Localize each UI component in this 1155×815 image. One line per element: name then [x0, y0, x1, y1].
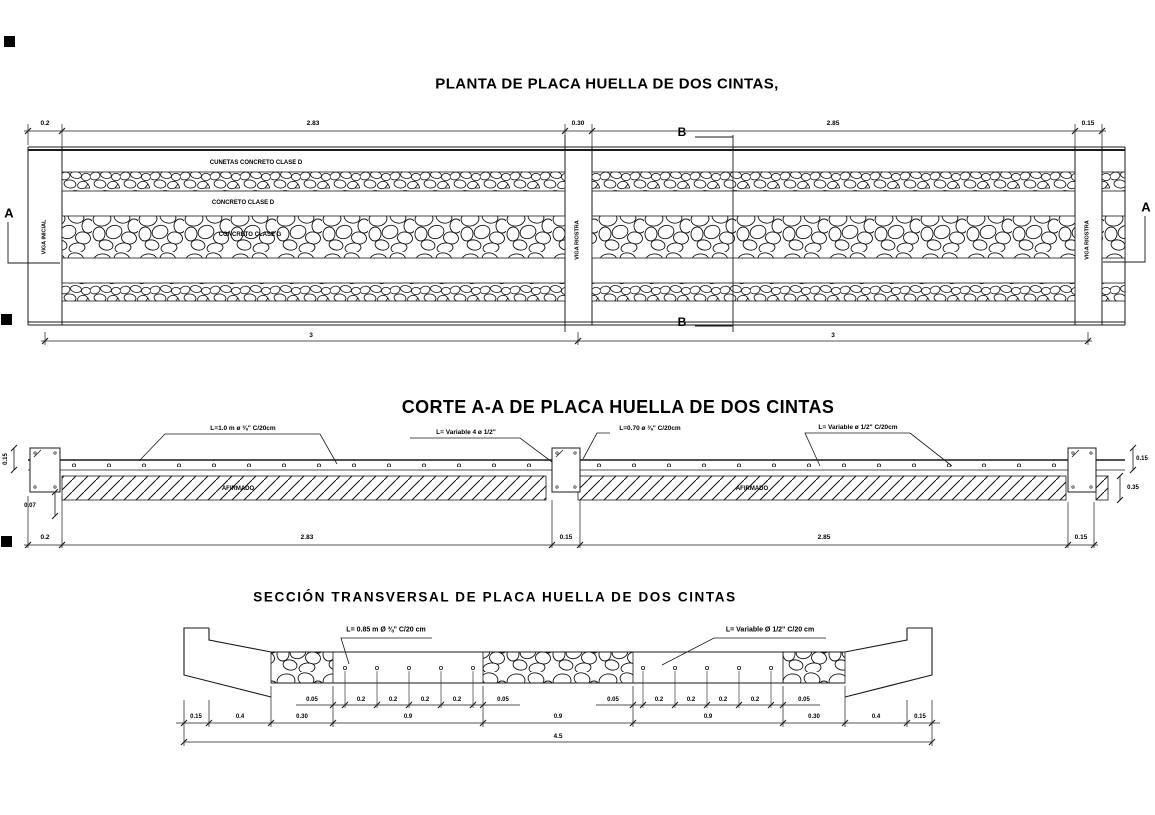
cad-sheet: PLANTA DE PLACA HUELLA DE DOS CINTAS, 0.… [0, 0, 1155, 815]
sec-r2-1: 0.15 [190, 714, 202, 720]
seccion-title: SECCIÓN TRANSVERSAL DE PLACA HUELLA DE D… [253, 590, 736, 604]
corte-annotation-4: L= Variable ø 1/2" C/20cm [818, 425, 897, 432]
sec-r2-4: 0.9 [404, 714, 412, 720]
corte-title: CORTE A-A DE PLACA HUELLA DE DOS CINTAS [402, 398, 835, 416]
plan-label-concreto-d: CONCRETO CLASE D [212, 200, 274, 206]
sec-r1r-5: 0.2 [751, 697, 759, 703]
sec-r1l-3: 0.2 [389, 697, 397, 703]
sec-r2-2: 0.4 [236, 714, 244, 720]
seccion-linework [176, 628, 940, 746]
sec-dim-total: 4.5 [553, 734, 562, 741]
sec-r1r-1: 0.05 [607, 697, 619, 703]
sec-r1l-6: 0.05 [497, 697, 509, 703]
section-marker-square [1, 536, 12, 547]
plan-label-cunetas: CUNETAS CONCRETO CLASE D [210, 160, 302, 166]
sec-r1l-1: 0.05 [306, 697, 318, 703]
plan-title: PLANTA DE PLACA HUELLA DE DOS CINTAS, [435, 77, 778, 92]
plan-dim-3-right: 3 [831, 333, 835, 340]
corte-dim-b2: 2.83 [301, 535, 314, 542]
plan-dim-030: 0.30 [572, 121, 585, 128]
corte-annotation-2: L= Variable 4 ø 1/2" [436, 430, 496, 437]
corte-dim-b5: 0.15 [1075, 535, 1088, 542]
plan-beam-riostra-right: VIGA RIOSTRA [1085, 220, 1091, 260]
section-marker-square [4, 36, 15, 47]
sec-r2-3: 0.30 [296, 714, 308, 720]
plan-dim-285: 2.85 [827, 121, 840, 128]
section-marker-a-left: A [4, 207, 13, 220]
sec-r1l-5: 0.2 [453, 697, 461, 703]
corte-dim-left-015: 0.15 [3, 453, 9, 465]
section-marker-b-top: B [678, 126, 687, 138]
sec-r1r-4: 0.2 [719, 697, 727, 703]
section-marker-a-right: A [1141, 201, 1150, 214]
plan-dim-02: 0.2 [40, 121, 49, 128]
seccion-annotation-1: L= 0.85 m Ø ⅜" C/20 cm [346, 627, 425, 634]
seccion-annotation-2: L= Variable Ø 1/2" C/20 cm [726, 627, 814, 634]
corte-annotation-3: L=0.70 ø ⅜" C/20cm [619, 426, 680, 433]
corte-dim-b4: 2.85 [818, 535, 831, 542]
corte-dim-b1: 0.2 [40, 535, 49, 542]
plan-beam-riostra-mid: VIGA RIOSTRA [575, 220, 581, 260]
sec-r1l-4: 0.2 [421, 697, 429, 703]
sec-r1r-3: 0.2 [687, 697, 695, 703]
corte-afirmado-right: AFIRMADO [736, 486, 768, 492]
sec-r1r-2: 0.2 [655, 697, 663, 703]
plan-dim-015: 0.15 [1082, 121, 1095, 128]
corte-afirmado-left: AFIRMADO [222, 486, 254, 492]
corte-dim-right-035: 0.35 [1127, 485, 1139, 491]
plan-dim-283: 2.83 [307, 121, 320, 128]
sec-r2-9: 0.15 [914, 714, 926, 720]
corte-dim-right-015: 0.15 [1136, 456, 1148, 462]
sec-r2-8: 0.4 [872, 714, 880, 720]
sec-r2-5: 0.9 [554, 714, 562, 720]
corte-annotation-1: L=1.0 m ø ⅜" C/20cm [210, 426, 275, 433]
sec-r1l-2: 0.2 [357, 697, 365, 703]
section-marker-square [1, 314, 12, 325]
section-marker-b-bottom: B [678, 316, 687, 328]
corte-dim-left-007: 0.07 [24, 503, 36, 509]
sec-r2-7: 0.30 [808, 714, 820, 720]
plan-dim-3-left: 3 [309, 333, 313, 340]
corte-linework [11, 433, 1136, 548]
sec-r2-6: 0.9 [704, 714, 712, 720]
corte-dim-b3: 0.15 [560, 535, 573, 542]
sec-r1r-6: 0.05 [798, 697, 810, 703]
plan-beam-inicial: VIGA INICIAL [42, 220, 48, 255]
plan-label-concreto-g: CONCRETO CLASE G [219, 232, 282, 238]
